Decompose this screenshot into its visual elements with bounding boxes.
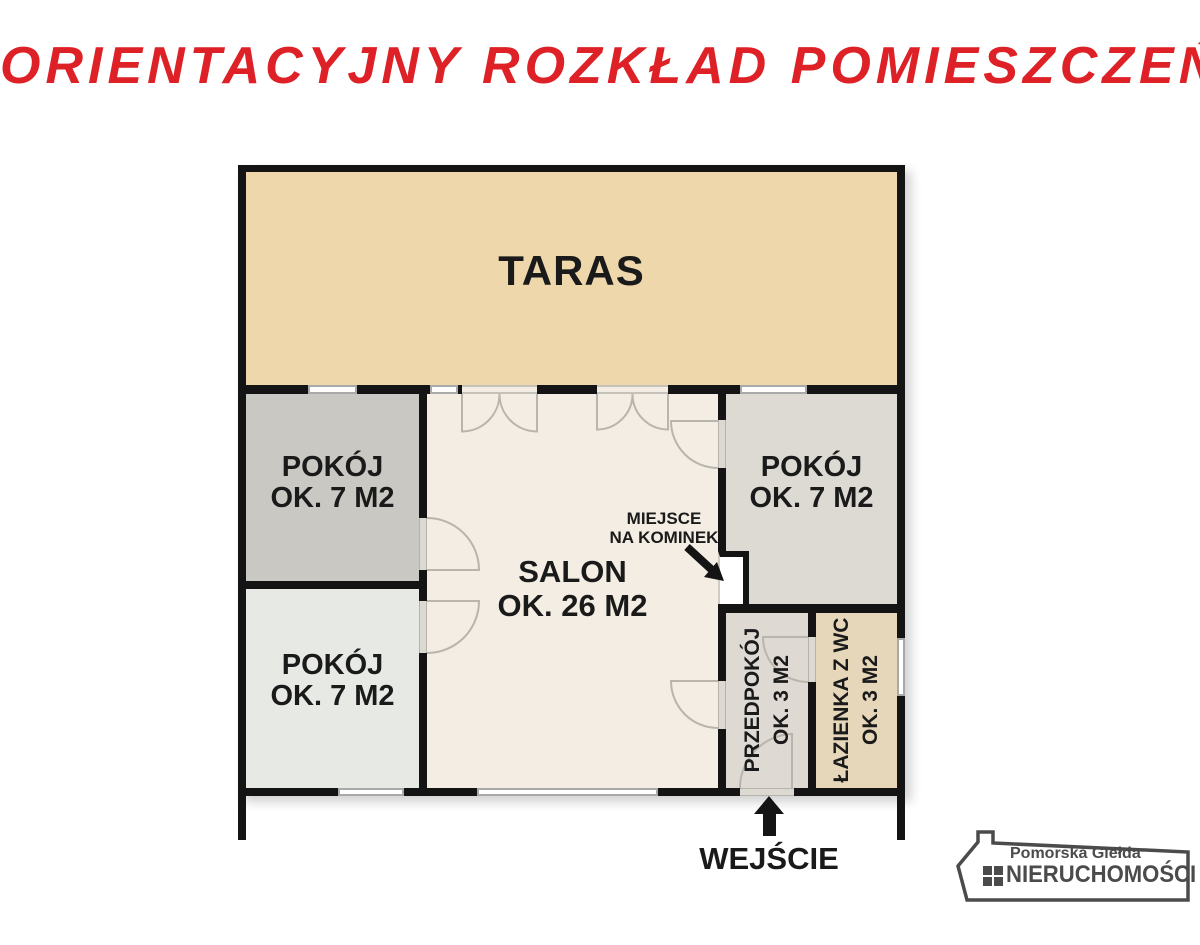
- label-salon: SALON OK. 26 M2: [427, 555, 718, 623]
- window: [430, 385, 458, 394]
- label-pokoj-right: POKÓJ OK. 7 M2: [726, 452, 897, 514]
- door-opening: [419, 601, 427, 653]
- window: [897, 638, 905, 696]
- room-name: PRZEDPOKÓJ: [738, 612, 767, 788]
- room-area: OK. 26 M2: [427, 589, 718, 623]
- door-opening: [718, 420, 726, 468]
- room-name: SALON: [427, 555, 718, 589]
- wall: [238, 581, 427, 589]
- floorplan-page: { "title": "ORIENTACYJNY ROZKŁAD POMIESZ…: [0, 0, 1200, 945]
- room-area: OK. 7 M2: [246, 483, 419, 514]
- label-lazienka: ŁAZIENKA Z WC OK. 3 M2: [827, 612, 885, 788]
- wall: [808, 604, 816, 796]
- door-opening: [808, 637, 816, 682]
- page-title: ORIENTACYJNY ROZKŁAD POMIESZCZEŃ: [0, 36, 1200, 96]
- fireplace-text-line2: NA KOMINEK: [589, 528, 739, 547]
- label-pokoj-bottom-left: POKÓJ OK. 7 M2: [246, 650, 419, 712]
- room-area: OK. 7 M2: [726, 483, 897, 514]
- wall: [419, 385, 427, 796]
- window: [338, 788, 404, 796]
- logo-window-icon: [983, 866, 1003, 886]
- label-fireplace: MIEJSCE NA KOMINEK: [589, 509, 739, 547]
- french-door-opening: [597, 385, 668, 394]
- room-area: OK. 3 M2: [767, 612, 796, 788]
- room-name: POKÓJ: [246, 452, 419, 483]
- room-name: POKÓJ: [246, 650, 419, 681]
- label-entrance: WEJŚCIE: [669, 841, 869, 877]
- door-opening: [718, 681, 726, 729]
- room-area: OK. 3 M2: [856, 612, 885, 788]
- room-name: POKÓJ: [726, 452, 897, 483]
- window: [308, 385, 357, 394]
- wall: [238, 385, 246, 840]
- window: [477, 788, 658, 796]
- french-door-opening: [462, 385, 537, 394]
- door-opening: [419, 518, 427, 570]
- window: [740, 385, 807, 394]
- room-area: OK. 7 M2: [246, 681, 419, 712]
- fireplace-niche: [718, 551, 749, 604]
- label-pokoj-top-left: POKÓJ OK. 7 M2: [246, 452, 419, 514]
- fireplace-text-line1: MIEJSCE: [589, 509, 739, 528]
- label-przedpokoj: PRZEDPOKÓJ OK. 3 M2: [738, 612, 796, 788]
- logo-text-bottom: NIERUCHOMOŚCI: [1006, 861, 1190, 889]
- room-name: ŁAZIENKA Z WC: [827, 612, 856, 788]
- label-taras: TARAS: [238, 247, 905, 295]
- entrance-opening: [740, 788, 794, 796]
- wall: [238, 165, 905, 172]
- entrance-arrow-icon: [754, 796, 784, 836]
